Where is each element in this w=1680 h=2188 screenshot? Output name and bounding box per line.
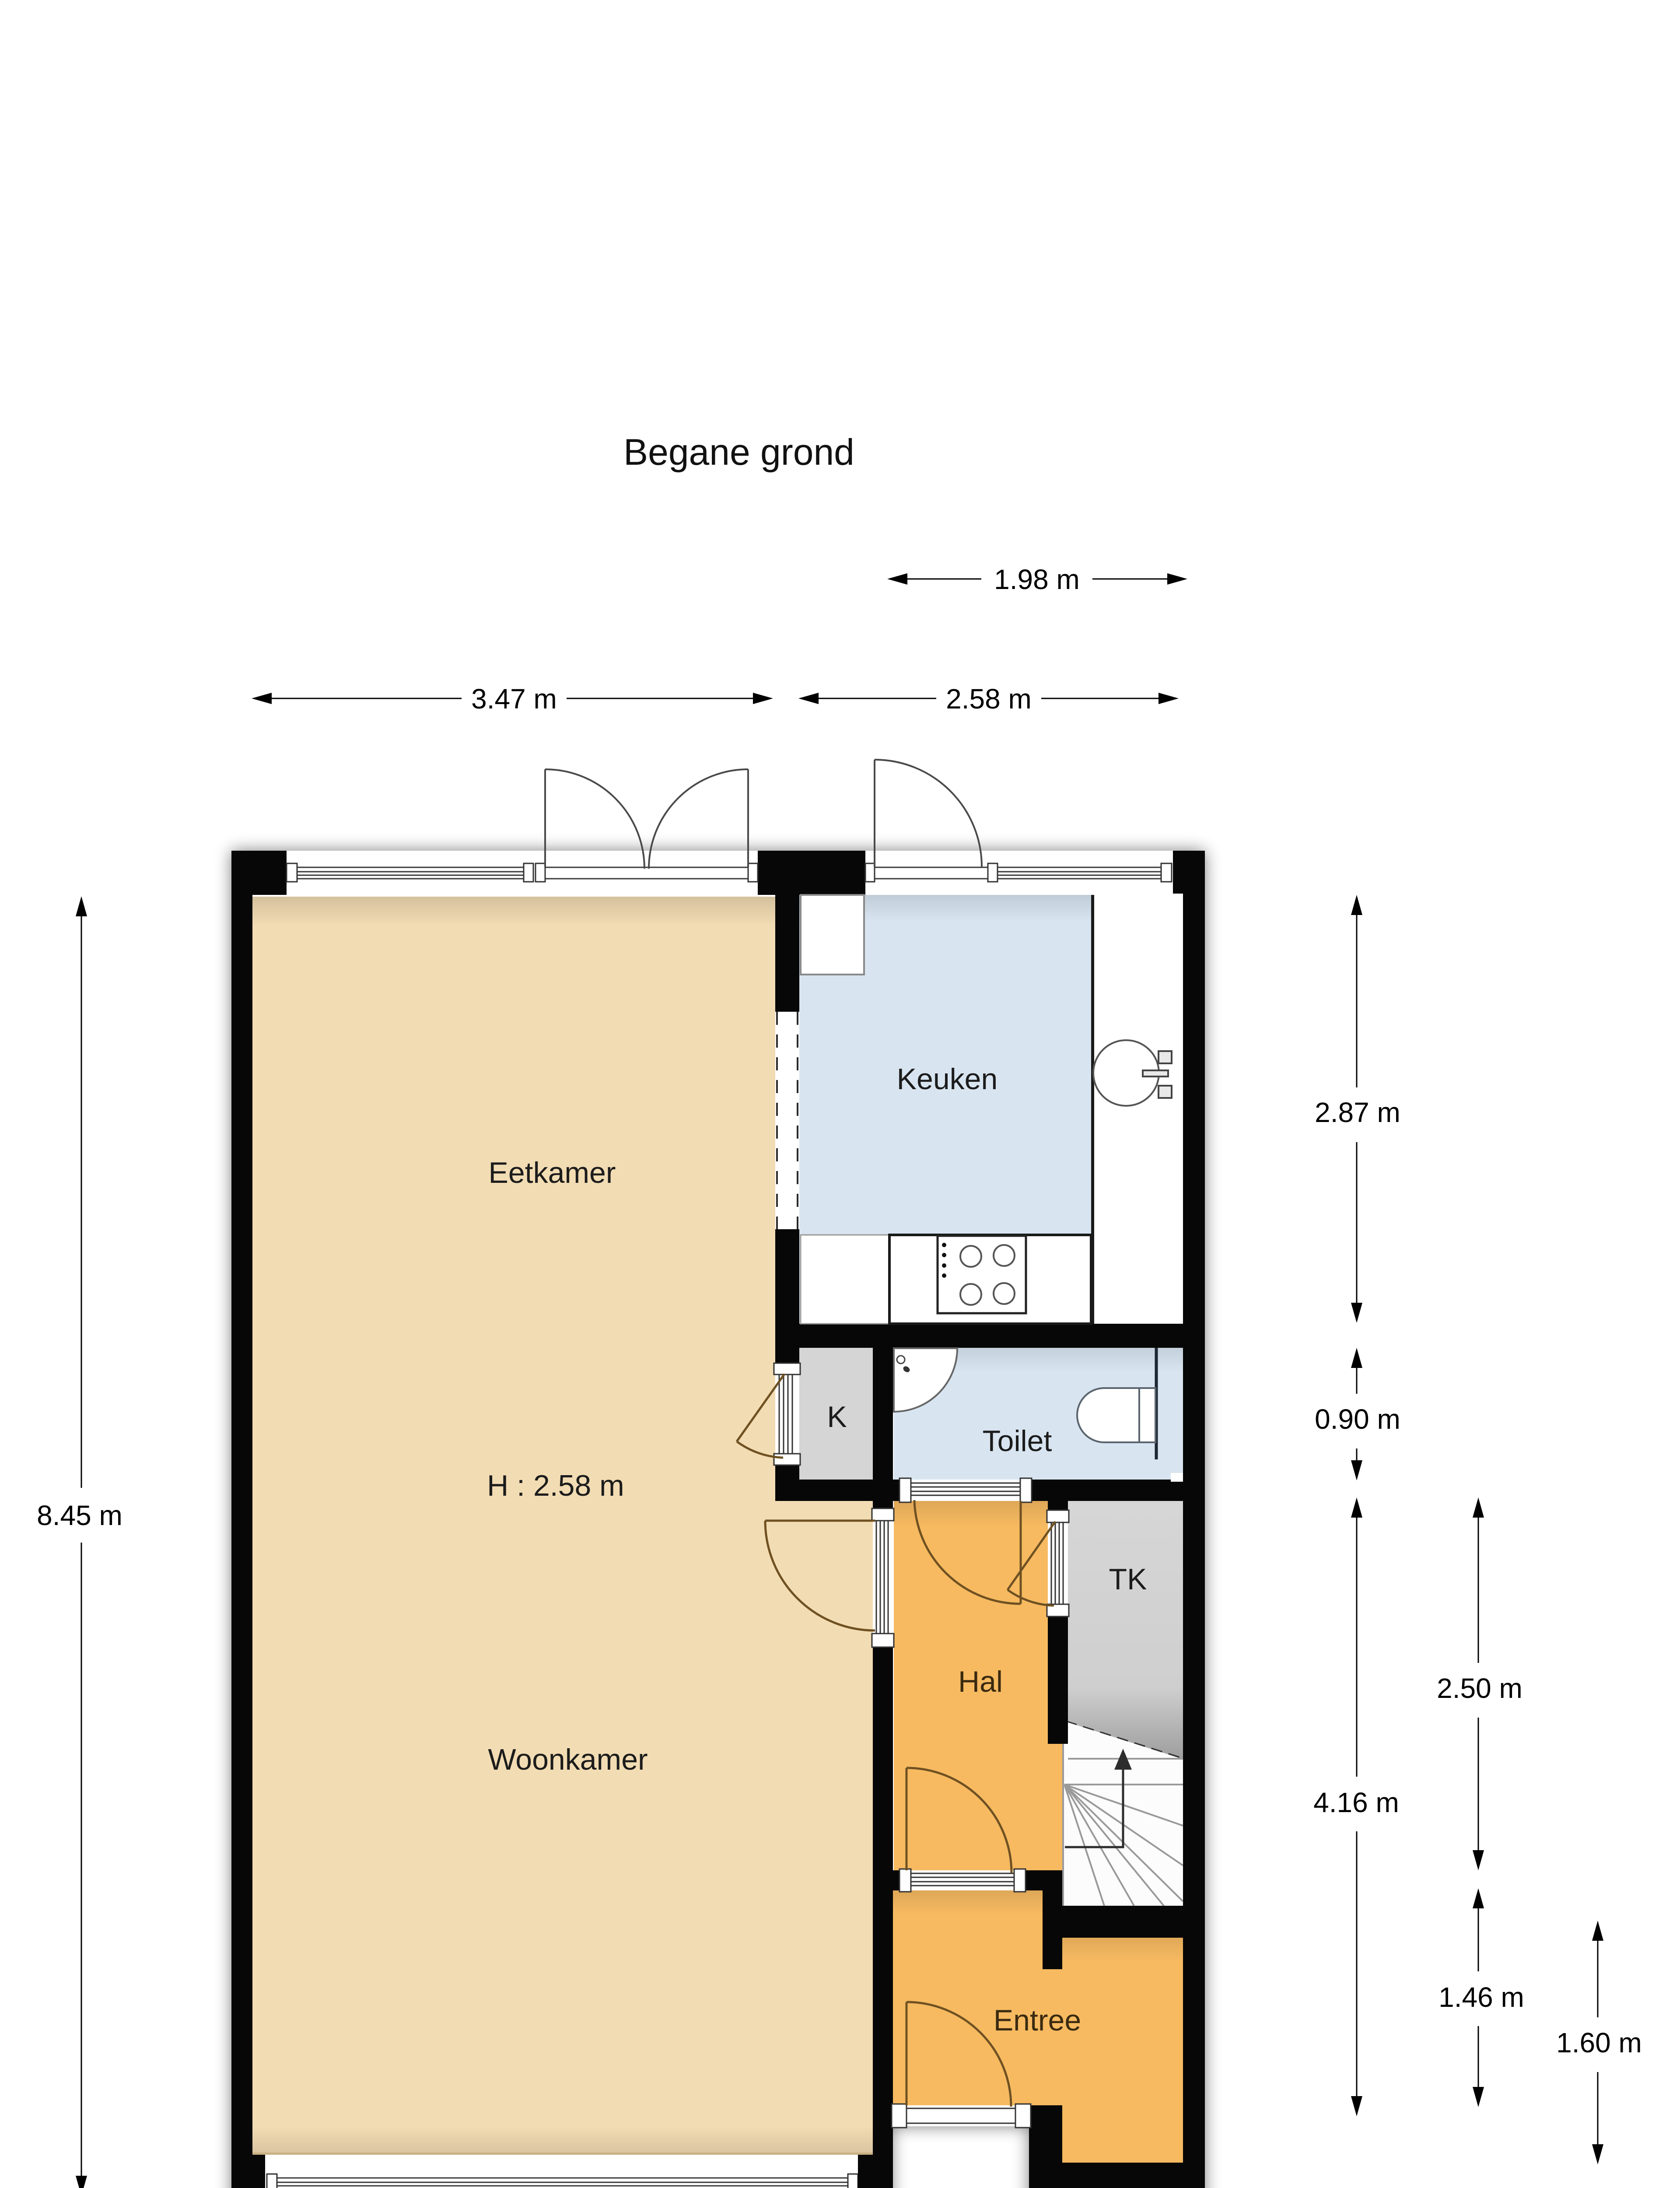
svg-text:TK: TK: [1109, 1563, 1147, 1596]
svg-text:1.60 m: 1.60 m: [1556, 2027, 1642, 2058]
svg-text:Keuken: Keuken: [897, 1062, 998, 1096]
svg-text:0.90 m: 0.90 m: [1315, 1403, 1400, 1435]
svg-text:H : 2.58 m: H : 2.58 m: [487, 1469, 624, 1502]
svg-text:3.47 m: 3.47 m: [471, 683, 557, 715]
svg-text:Begane grond: Begane grond: [623, 431, 854, 473]
svg-text:8.45 m: 8.45 m: [37, 1500, 122, 1531]
svg-text:Eetkamer: Eetkamer: [489, 1156, 616, 1189]
svg-text:4.16 m: 4.16 m: [1313, 1787, 1399, 1818]
svg-text:Hal: Hal: [958, 1665, 1003, 1698]
svg-text:Toilet: Toilet: [983, 1424, 1052, 1458]
svg-text:1.98 m: 1.98 m: [994, 564, 1080, 595]
svg-text:2.87 m: 2.87 m: [1315, 1097, 1400, 1128]
svg-text:1.46 m: 1.46 m: [1438, 1981, 1524, 2013]
svg-text:Entree: Entree: [994, 2004, 1081, 2037]
svg-text:K: K: [827, 1400, 847, 1434]
svg-text:2.58 m: 2.58 m: [946, 683, 1032, 715]
svg-text:Woonkamer: Woonkamer: [488, 1743, 647, 1776]
svg-text:2.50 m: 2.50 m: [1437, 1673, 1522, 1704]
